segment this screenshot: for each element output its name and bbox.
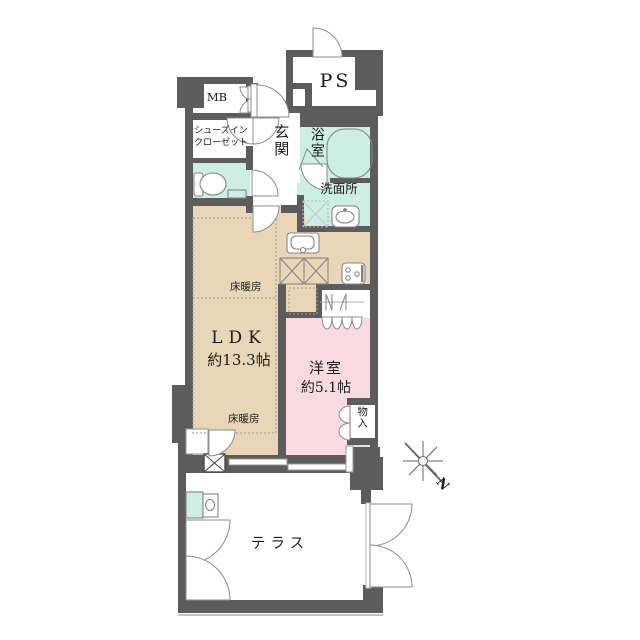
floor-plan: PS MB シューズインクローゼット 玄関 浴室 洗面所 床暖房 床暖房 LDK… bbox=[0, 0, 640, 640]
front-door-leaf bbox=[251, 84, 257, 117]
shoe-closet-line2: クローゼット bbox=[194, 138, 248, 148]
terrace-right-door-arc-bottom bbox=[370, 545, 412, 587]
ldk-terrace-sliding-door bbox=[229, 459, 287, 465]
mb-label: MB bbox=[194, 90, 240, 106]
ps-label: PS bbox=[288, 69, 383, 95]
storage-label: 物入 bbox=[355, 406, 369, 429]
ldk-size: 約13.3帖 bbox=[207, 351, 270, 369]
western-room-size: 約5.1帖 bbox=[301, 380, 351, 396]
floor-heating-label-upper: 床暖房 bbox=[230, 280, 262, 294]
floor-heating-label-lower: 床暖房 bbox=[228, 412, 260, 426]
bathroom-label: 浴室 bbox=[307, 127, 326, 159]
shoe-closet-label: シューズインクローゼット bbox=[193, 125, 249, 149]
western-room-label: 洋室約5.1帖 bbox=[286, 358, 366, 398]
ldk-label: LDK約13.3帖 bbox=[193, 327, 285, 370]
washroom-label: 洗面所 bbox=[300, 181, 378, 198]
terrace-right-door-arc-top bbox=[370, 504, 412, 546]
balcony-edge-line bbox=[178, 614, 383, 616]
slop-sink-icon bbox=[186, 492, 203, 518]
entrance-label: 玄関 bbox=[271, 124, 291, 158]
bedroom-terrace-sliding-door bbox=[288, 464, 346, 470]
western-room-name: 洋室 bbox=[309, 359, 343, 377]
compass-star-icon bbox=[403, 441, 444, 484]
ldk-name: LDK bbox=[211, 328, 267, 348]
side-window-slot bbox=[346, 446, 353, 472]
ps-door-arc bbox=[313, 28, 342, 57]
shoe-closet-line1: シューズイン bbox=[194, 126, 248, 136]
terrace-label: テラス bbox=[224, 535, 336, 555]
